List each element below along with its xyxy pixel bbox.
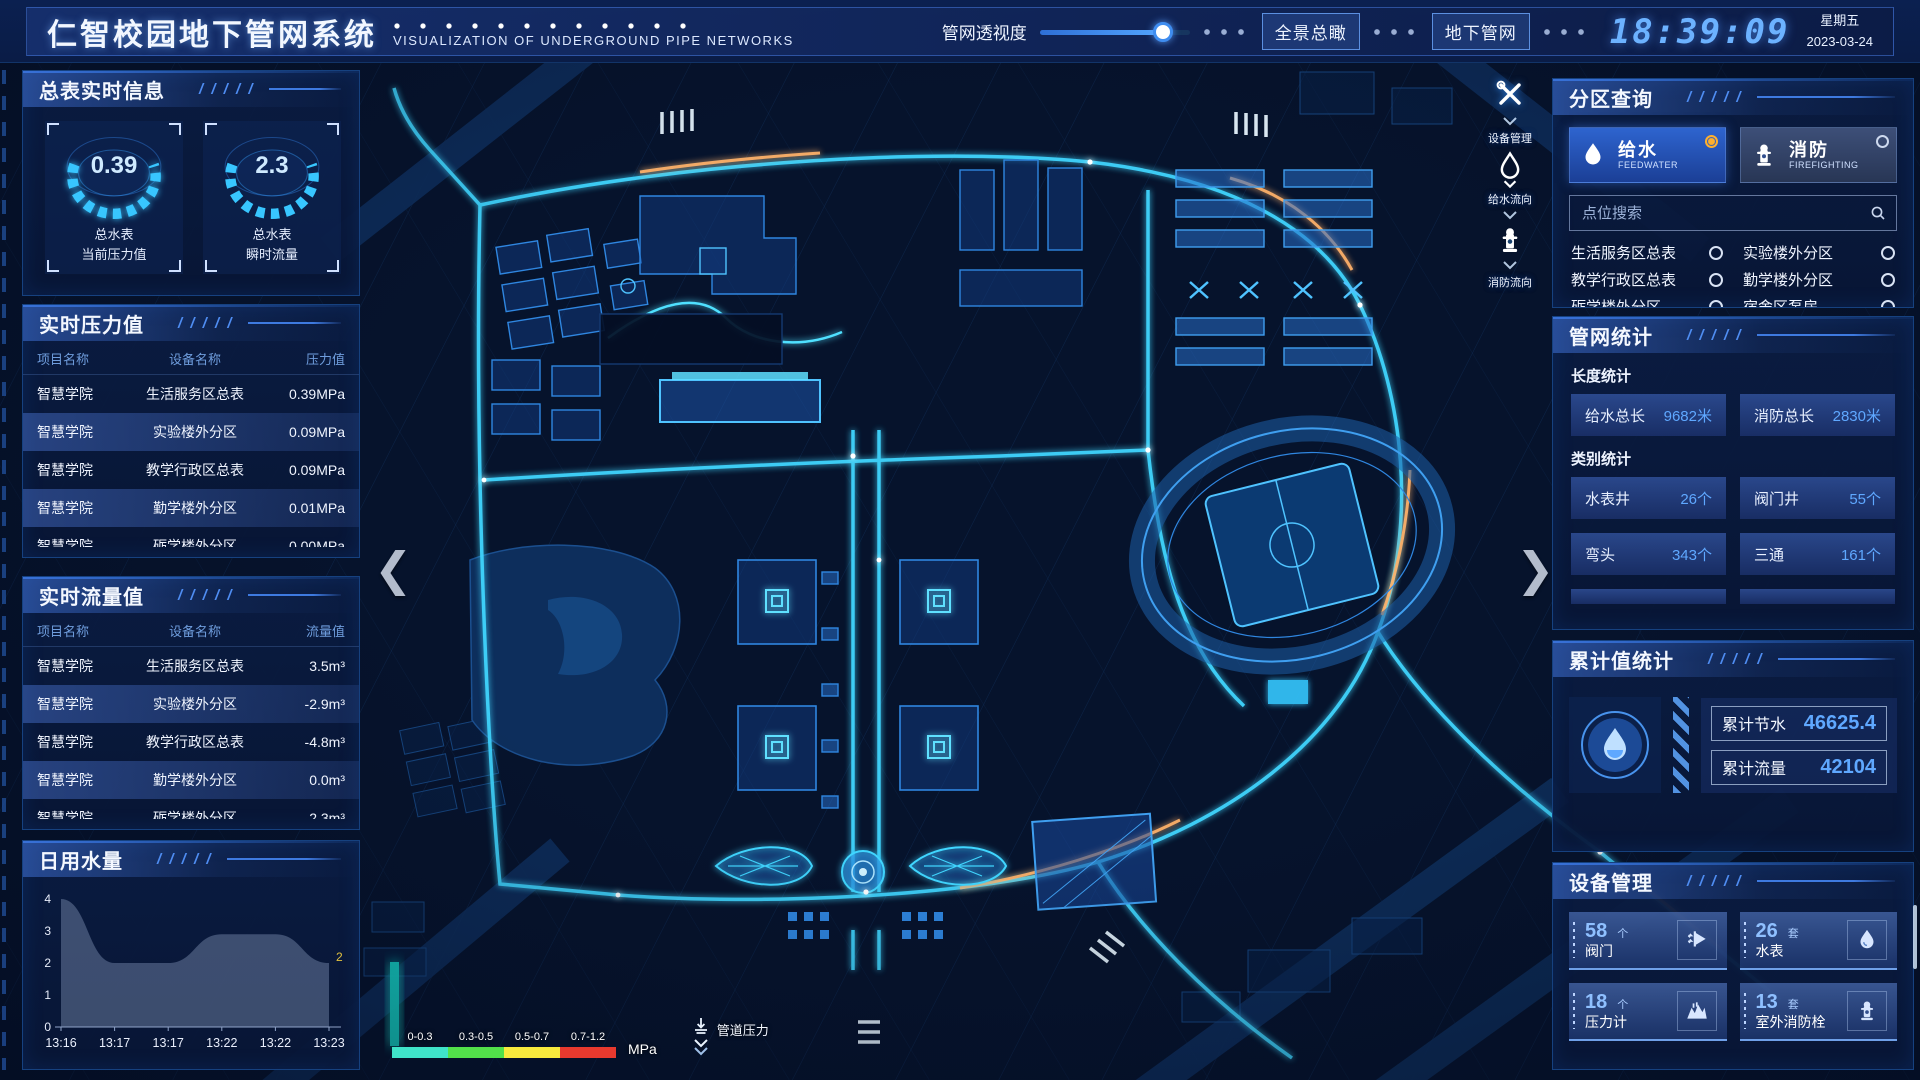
header: 仁智校园地下管网系统 VISUALIZATION OF UNDERGROUND … bbox=[0, 0, 1920, 63]
table-header: 项目名称 设备名称 流量值 bbox=[23, 613, 359, 647]
tab-label: 给水 bbox=[1618, 140, 1678, 161]
gauge-label: 总水表 bbox=[49, 225, 179, 245]
device-card-pressure[interactable]: 18个 压力计 bbox=[1569, 983, 1727, 1041]
chevron-down-icon bbox=[1502, 211, 1518, 221]
svg-text:3: 3 bbox=[44, 924, 51, 938]
chevron-down-icon bbox=[693, 1038, 709, 1058]
stat-chip-clipped bbox=[1571, 589, 1726, 604]
hazard-stripe-decoration bbox=[1673, 697, 1689, 793]
legend-label: 管道压力 bbox=[717, 1020, 769, 1039]
panel-daily-water: 日用水量 0123413:1613:1713:1713:2213:2213:23… bbox=[22, 840, 360, 1070]
tools-icon bbox=[1490, 74, 1530, 114]
table-row[interactable]: 智慧学院实验楼外分区-2.9m³ bbox=[23, 685, 359, 723]
daily-water-chart: 0123413:1613:1713:1713:2213:2213:232 bbox=[25, 883, 349, 1059]
gauge-label: 总水表 bbox=[207, 225, 337, 245]
pressure-table: 智慧学院生活服务区总表0.39MPa 智慧学院实验楼外分区0.09MPa 智慧学… bbox=[23, 375, 359, 547]
water-drop-icon bbox=[1578, 140, 1608, 170]
zone-list: 生活服务区总表 实验楼外分区 教学行政区总表 勤学楼外分区 砺学楼外分区 宿舍区… bbox=[1571, 239, 1895, 308]
pipe-opacity-slider[interactable] bbox=[1040, 21, 1190, 43]
search-icon[interactable] bbox=[1870, 205, 1886, 221]
tab-feedwater[interactable]: 给水 FEEDWATER bbox=[1569, 127, 1726, 183]
title-decoration bbox=[178, 587, 234, 604]
water-badge bbox=[1569, 697, 1661, 793]
title-decoration bbox=[1687, 327, 1743, 344]
title-decoration bbox=[1687, 873, 1743, 890]
map-next-icon[interactable]: ❯ bbox=[1516, 546, 1555, 592]
title-decoration bbox=[1687, 89, 1743, 106]
panel-title: 管网统计 bbox=[1569, 321, 1653, 350]
title-line bbox=[248, 594, 341, 596]
chevron-down-icon bbox=[1502, 117, 1518, 127]
panel-realtime-pressure: 实时压力值 项目名称 设备名称 压力值 智慧学院生活服务区总表0.39MPa 智… bbox=[22, 304, 360, 558]
flow-table: 智慧学院生活服务区总表3.5m³ 智慧学院实验楼外分区-2.9m³ 智慧学院教学… bbox=[23, 647, 359, 819]
dots-decoration bbox=[1373, 28, 1419, 36]
panel-title: 累计值统计 bbox=[1569, 645, 1674, 674]
map-prev-icon[interactable]: ❮ bbox=[374, 546, 413, 592]
clock: 18:39:09 bbox=[1610, 12, 1790, 52]
pipe-pressure-legend: 0-0.3 0.3-0.5 0.5-0.7 0.7-1.2 MPa bbox=[392, 1016, 769, 1058]
list-item[interactable]: 勤学楼外分区 bbox=[1743, 266, 1895, 293]
legend-seg-1 bbox=[448, 1047, 504, 1058]
tab-radio-selected[interactable] bbox=[1705, 135, 1718, 148]
device-card-hydrant[interactable]: 13套 室外消防栓 bbox=[1740, 983, 1898, 1041]
svg-text:13:17: 13:17 bbox=[99, 1036, 130, 1050]
title-line bbox=[227, 858, 341, 860]
list-item[interactable]: 宿舍区泵房 bbox=[1743, 293, 1895, 308]
title-line bbox=[1757, 96, 1895, 98]
valve-icon bbox=[1684, 927, 1710, 953]
radio-icon[interactable] bbox=[1881, 246, 1895, 260]
table-row[interactable]: 智慧学院教学行政区总表-4.8m³ bbox=[23, 723, 359, 761]
title-line bbox=[269, 88, 341, 90]
table-row[interactable]: 智慧学院勤学楼外分区0.0m³ bbox=[23, 761, 359, 799]
panel-title: 实时流量值 bbox=[39, 581, 144, 610]
device-card-meter[interactable]: 26套 水表 bbox=[1740, 912, 1898, 970]
svg-text:13:22: 13:22 bbox=[260, 1036, 291, 1050]
tab-firefighting[interactable]: 消防 FIREFIGHTING bbox=[1740, 127, 1897, 183]
dots-decoration bbox=[1543, 28, 1589, 36]
title-line bbox=[1757, 334, 1895, 336]
radio-icon[interactable] bbox=[1709, 300, 1723, 309]
app-root: 仁智校园地下管网系统 VISUALIZATION OF UNDERGROUND … bbox=[0, 0, 1920, 1080]
panel-network-stats: 管网统计 长度统计 给水总长9682米 消防总长2830米 类别统计 水表井26… bbox=[1552, 316, 1914, 630]
pipe-pressure-icon bbox=[691, 1016, 711, 1036]
tab-label: 消防 bbox=[1789, 140, 1859, 161]
radio-icon[interactable] bbox=[1709, 246, 1723, 260]
gauge-sublabel: 瞬时流量 bbox=[207, 245, 337, 265]
legend-color-bar bbox=[392, 1047, 616, 1058]
title-line bbox=[248, 322, 341, 324]
radio-icon[interactable] bbox=[1881, 300, 1895, 309]
title-line bbox=[1757, 880, 1895, 882]
stat-chip: 弯头343个 bbox=[1571, 533, 1726, 575]
scrollbar[interactable] bbox=[1913, 905, 1917, 969]
toolbar-label: 给水流向 bbox=[1488, 191, 1532, 207]
svg-text:0: 0 bbox=[44, 1020, 51, 1034]
slider-fill bbox=[1040, 30, 1163, 35]
page-title: 仁智校园地下管网系统 bbox=[47, 10, 377, 54]
legend-seg-2 bbox=[504, 1047, 560, 1058]
title-decoration bbox=[178, 315, 234, 332]
legend-seg-3 bbox=[560, 1047, 616, 1058]
list-item[interactable]: 教学行政区总表 bbox=[1571, 266, 1723, 293]
panel-realtime-flow: 实时流量值 项目名称 设备名称 流量值 智慧学院生活服务区总表3.5m³ 智慧学… bbox=[22, 576, 360, 830]
toolbar-device-management[interactable]: 设备管理 bbox=[1488, 74, 1532, 146]
svg-text:2: 2 bbox=[336, 950, 343, 964]
toolbar-label: 消防流向 bbox=[1488, 274, 1532, 290]
map-toolbar: 设备管理 给水流向 消防流向 bbox=[1478, 74, 1542, 290]
pipe-opacity-label: 管网透视度 bbox=[942, 19, 1027, 44]
tab-sublabel: FEEDWATER bbox=[1618, 160, 1678, 170]
water-drop-icon bbox=[1493, 150, 1527, 188]
total-saved: 累计节水 46625.4 bbox=[1711, 706, 1887, 741]
chevron-down-icon bbox=[1502, 261, 1518, 271]
page-subtitle: VISUALIZATION OF UNDERGROUND PIPE NETWOR… bbox=[393, 33, 794, 48]
title-decoration bbox=[199, 81, 255, 98]
title-line bbox=[1778, 658, 1895, 660]
table-row[interactable]: 智慧学院砺学楼外分区0.00MPa bbox=[23, 527, 359, 547]
search-input[interactable] bbox=[1580, 204, 1870, 223]
list-item[interactable]: 砺学楼外分区 bbox=[1571, 293, 1723, 308]
table-header: 项目名称 设备名称 压力值 bbox=[23, 341, 359, 375]
list-item[interactable]: 生活服务区总表 bbox=[1571, 239, 1723, 266]
panel-title: 实时压力值 bbox=[39, 309, 144, 338]
toolbar-feedwater-flow[interactable]: 给水流向 bbox=[1488, 150, 1532, 207]
date: 2023-03-24 bbox=[1807, 32, 1874, 52]
edge-decoration bbox=[2, 70, 6, 1070]
svg-text:13:17: 13:17 bbox=[153, 1036, 184, 1050]
total-flow: 累计流量 42104 bbox=[1711, 750, 1887, 785]
water-drop-icon bbox=[1854, 927, 1880, 953]
flow-gauge: 2.3 总水表 瞬时流量 bbox=[203, 121, 341, 274]
table-row[interactable]: 智慧学院教学行政区总表0.09MPa bbox=[23, 451, 359, 489]
dots-decoration bbox=[1203, 28, 1249, 36]
overview-button[interactable]: 全景总瞰 bbox=[1262, 13, 1360, 50]
panel-title: 日用水量 bbox=[39, 845, 123, 874]
stat-chip: 给水总长9682米 bbox=[1571, 394, 1726, 436]
svg-text:13:16: 13:16 bbox=[45, 1036, 76, 1050]
hydrant-icon bbox=[1749, 140, 1779, 170]
legend-range: 0.5-0.7 bbox=[504, 1031, 560, 1043]
date-box: 星期五 2023-03-24 bbox=[1807, 11, 1874, 51]
stat-chip: 阀门井55个 bbox=[1740, 477, 1895, 519]
tab-radio[interactable] bbox=[1876, 135, 1889, 148]
panel-realtime-meters: 总表实时信息 0.39 总水表 当前压力值 bbox=[22, 70, 360, 296]
panel-cumulative: 累计值统计 累计节水 46625.4 累计流量 421 bbox=[1552, 640, 1914, 852]
svg-text:13:22: 13:22 bbox=[206, 1036, 237, 1050]
list-item[interactable]: 实验楼外分区 bbox=[1743, 239, 1895, 266]
tab-sublabel: FIREFIGHTING bbox=[1789, 160, 1859, 170]
radio-icon[interactable] bbox=[1881, 273, 1895, 287]
toolbar-label: 设备管理 bbox=[1488, 130, 1532, 146]
underground-button[interactable]: 地下管网 bbox=[1432, 13, 1530, 50]
gauge-value: 0.39 bbox=[91, 152, 138, 179]
legend-range: 0-0.3 bbox=[392, 1031, 448, 1043]
legend-range: 0.3-0.5 bbox=[448, 1031, 504, 1043]
table-row[interactable]: 智慧学院实验楼外分区0.09MPa bbox=[23, 413, 359, 451]
device-card-valve[interactable]: 58个 阀门 bbox=[1569, 912, 1727, 970]
svg-text:2: 2 bbox=[44, 956, 51, 970]
svg-text:4: 4 bbox=[44, 892, 51, 906]
legend-seg-0 bbox=[392, 1047, 448, 1058]
table-row[interactable]: 智慧学院勤学楼外分区0.01MPa bbox=[23, 489, 359, 527]
stat-chip: 三通161个 bbox=[1740, 533, 1895, 575]
panel-title: 总表实时信息 bbox=[39, 75, 165, 104]
title-decoration bbox=[157, 851, 213, 868]
hydrant-icon bbox=[1493, 224, 1527, 258]
stat-chip-clipped bbox=[1740, 589, 1895, 604]
table-row[interactable]: 智慧学院生活服务区总表0.39MPa bbox=[23, 375, 359, 413]
svg-text:13:23: 13:23 bbox=[313, 1036, 344, 1050]
header-dots-decoration bbox=[393, 22, 705, 30]
stat-chip: 消防总长2830米 bbox=[1740, 394, 1895, 436]
panel-title: 设备管理 bbox=[1569, 867, 1653, 896]
title-decoration bbox=[1708, 651, 1764, 668]
panel-title: 分区查询 bbox=[1569, 83, 1653, 112]
gauge-sublabel: 当前压力值 bbox=[49, 245, 179, 265]
toolbar-fire-flow[interactable]: 消防流向 bbox=[1488, 211, 1532, 290]
gauge-dial-icon: 2.3 bbox=[207, 125, 337, 225]
panel-zone-query: 分区查询 给水 FEEDWATER 消防 FIREFIGHTING bbox=[1552, 78, 1914, 308]
gauge-value: 2.3 bbox=[255, 152, 288, 179]
radio-icon[interactable] bbox=[1709, 273, 1723, 287]
legend-unit: MPa bbox=[628, 1041, 657, 1057]
legend-range: 0.7-1.2 bbox=[560, 1031, 616, 1043]
slider-thumb[interactable] bbox=[1153, 22, 1173, 42]
hydrant-icon bbox=[1854, 998, 1880, 1024]
water-drop-icon bbox=[1578, 708, 1652, 782]
search-box bbox=[1569, 195, 1897, 231]
svg-text:1: 1 bbox=[44, 988, 51, 1002]
section-label: 长度统计 bbox=[1571, 365, 1895, 386]
section-label: 类别统计 bbox=[1571, 448, 1895, 469]
stat-chip: 水表井26个 bbox=[1571, 477, 1726, 519]
pressure-gauge-icon bbox=[1684, 998, 1710, 1024]
pressure-gauge: 0.39 总水表 当前压力值 bbox=[45, 121, 183, 274]
weekday: 星期五 bbox=[1807, 11, 1874, 31]
panel-device-management: 设备管理 58个 阀门 26套 水表 18个 bbox=[1552, 862, 1914, 1070]
table-row[interactable]: 智慧学院砺学楼外分区2.3m³ bbox=[23, 799, 359, 819]
gauge-dial-icon: 0.39 bbox=[49, 125, 179, 225]
table-row[interactable]: 智慧学院生活服务区总表3.5m³ bbox=[23, 647, 359, 685]
